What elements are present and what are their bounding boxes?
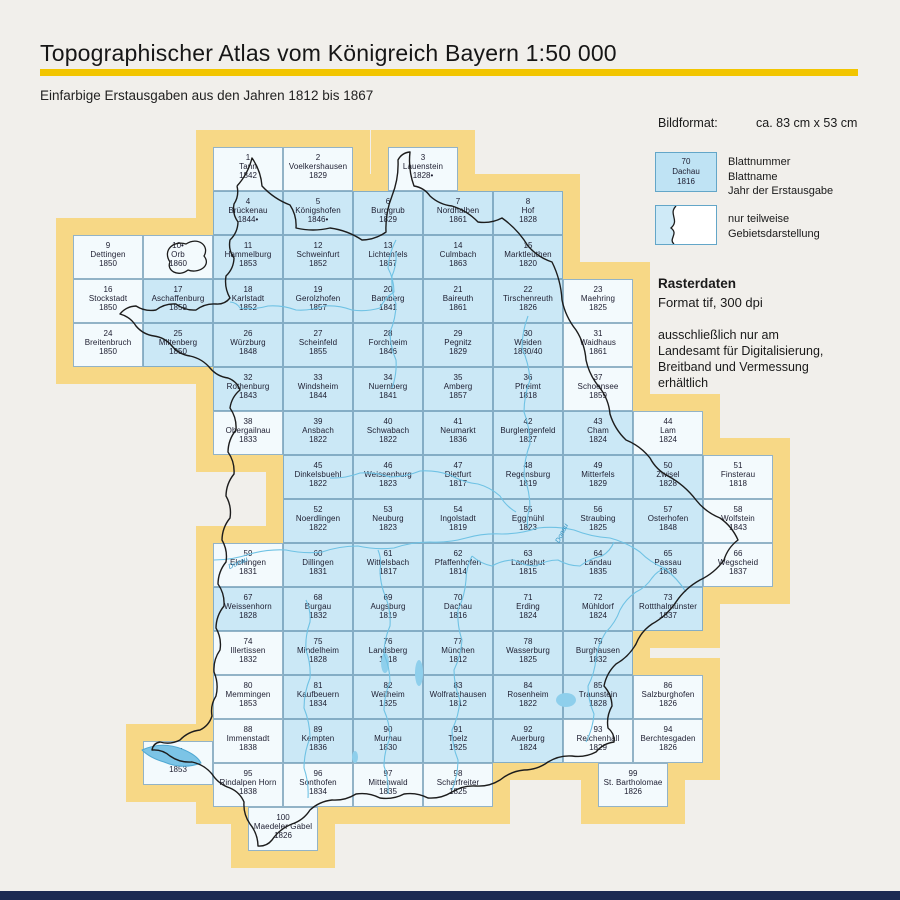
map-sheet-2: 2Voelkershausen1829: [283, 147, 353, 191]
map-sheet-70: 70Dachau1816: [423, 587, 493, 631]
map-sheet-19: 19Gerolzhofen1857: [283, 279, 353, 323]
map-sheet-51: 51Finsterau1818: [703, 455, 773, 499]
map-sheet-1: 1Tann1842: [213, 147, 283, 191]
map-sheet-94: 94Berchtesgaden1826: [633, 719, 703, 763]
map-sheet-77: 77München1812: [423, 631, 493, 675]
map-sheet-82: 82Weilheim1825: [353, 675, 423, 719]
partial-boundary-glyph: [656, 206, 716, 244]
map-sheet-6: 6Burggrub1829: [353, 191, 423, 235]
map-sheet-54: 54Ingolstadt1819: [423, 499, 493, 543]
map-sheet-73: 73Rottthalmünster1837: [633, 587, 703, 631]
map-sheet-25: 25Miltenberg1850: [143, 323, 213, 367]
map-sheet-23: 23Maehring1825: [563, 279, 633, 323]
map-sheet-90: 90Murnau1830: [353, 719, 423, 763]
map-sheet-59: 59Elchingen1831: [213, 543, 283, 587]
map-sheet-33: 33Windsheim1844: [283, 367, 353, 411]
map-sheet-48: 48Regensburg1819: [493, 455, 563, 499]
map-sheet-39: 39Ansbach1822: [283, 411, 353, 455]
map-sheet-87: 87Lindau1853: [143, 741, 213, 785]
map-sheet-37: 37Schoensee1859: [563, 367, 633, 411]
bildformat-value: ca. 83 cm x 53 cm: [756, 116, 857, 130]
map-sheet-89: 89Kempten1836: [283, 719, 353, 763]
map-sheet-71: 71Erding1824: [493, 587, 563, 631]
map-sheet-95: 95Rindalpen Horn1838: [213, 763, 283, 807]
rasterdaten-format: Format tif, 300 dpi: [658, 295, 763, 310]
map-sheet-53: 53Neuburg1823: [353, 499, 423, 543]
map-sheet-74: 74Illertissen1832: [213, 631, 283, 675]
map-sheet-49: 49Mitterfels1829: [563, 455, 633, 499]
rasterdaten-note: ausschließlich nur am Landesamt für Digi…: [658, 327, 826, 391]
map-sheet-31: 31Waidhaus1861: [563, 323, 633, 367]
map-sheet-30: 30Weiden1830/40: [493, 323, 563, 367]
map-sheet-61: 61Wittelsbach1817: [353, 543, 423, 587]
map-sheet-26: 26Würzburg1848: [213, 323, 283, 367]
map-sheet-5: 5Königshofen1846•: [283, 191, 353, 235]
map-sheet-12: 12Schweinfurt1852: [283, 235, 353, 279]
map-sheet-60: 60Dillingen1831: [283, 543, 353, 587]
rasterdaten-title: Rasterdaten: [658, 276, 736, 291]
map-sheet-20: 20Bamberg1841: [353, 279, 423, 323]
map-sheet-52: 52Noerdlingen1822: [283, 499, 353, 543]
map-sheet-8: 8Hof1828: [493, 191, 563, 235]
map-sheet-92: 92Auerburg1824: [493, 719, 563, 763]
map-sheet-63: 63Landshut1815: [493, 543, 563, 587]
map-sheet-99: 99St. Bartholomae1826: [598, 763, 668, 807]
map-sheet-17: 17Aschaffenburg1859: [143, 279, 213, 323]
map-sheet-9: 9Dettingen1850: [73, 235, 143, 279]
atlas-index-page: Topographischer Atlas vom Königreich Bay…: [0, 0, 900, 900]
map-sheet-4: 4Brückenau1844•: [213, 191, 283, 235]
map-sheet-3: 3Lauenstein1828•: [388, 147, 458, 191]
map-sheet-41: 41Neumarkt1836: [423, 411, 493, 455]
map-sheet-38: 38Obergailnau1833: [213, 411, 283, 455]
legend-partial-label: nur teilweise Gebietsdarstellung: [728, 212, 848, 241]
map-sheet-65: 65Passau1838: [633, 543, 703, 587]
map-sheet-13: 13Lichtenfels1867: [353, 235, 423, 279]
map-sheet-22: 22Tirschenreuth1826: [493, 279, 563, 323]
map-sheet-24: 24Breitenbruch1850: [73, 323, 143, 367]
map-sheet-47: 47Dietfurt1817: [423, 455, 493, 499]
map-sheet-27: 27Scheinfeld1855: [283, 323, 353, 367]
legend-sample-year: 1816: [656, 177, 716, 187]
map-sheet-97: 97Mittenwald1835: [353, 763, 423, 807]
map-sheet-62: 62Pfaffenhofen1814: [423, 543, 493, 587]
bildformat-label: Bildformat:: [658, 116, 718, 130]
map-sheet-88: 88Immenstadt1838: [213, 719, 283, 763]
map-sheet-67: 67Weissenhorn1828: [213, 587, 283, 631]
map-sheet-81: 81Kaufbeuern1834: [283, 675, 353, 719]
map-sheet-45: 45Dinkelsbuehl1822: [283, 455, 353, 499]
map-sheet-36: 36Pfreimt1818: [493, 367, 563, 411]
map-sheet-44: 44Lam1824: [633, 411, 703, 455]
map-sheet-68: 68Burgau1832: [283, 587, 353, 631]
map-sheet-75: 75Mindelheim1828: [283, 631, 353, 675]
map-sheet-69: 69Augsburg1819: [353, 587, 423, 631]
map-sheet-85: 85Traunstein1828: [563, 675, 633, 719]
map-sheet-91: 91Toelz1825: [423, 719, 493, 763]
map-sheet-29: 29Pegnitz1829: [423, 323, 493, 367]
map-sheet-21: 21Baireuth1861: [423, 279, 493, 323]
map-sheet-57: 57Osterhofen1848: [633, 499, 703, 543]
map-sheet-50: 50Zwisel1828: [633, 455, 703, 499]
legend-sample-labels: Blattnummer Blattname Jahr der Erstausga…: [728, 155, 833, 199]
map-sheet-18: 18Karlstadt1852: [213, 279, 283, 323]
map-sheet-40: 40Schwabach1822: [353, 411, 423, 455]
map-sheet-79: 79Burghausen1832: [563, 631, 633, 675]
legend-sample-number: 70: [656, 157, 716, 167]
map-sheet-14: 14Culmbach1863: [423, 235, 493, 279]
map-sheet-100: 100Maedeler Gabel1826: [248, 807, 318, 851]
map-sheet-43: 43Cham1824: [563, 411, 633, 455]
map-sheet-28: 28Forchheim1846: [353, 323, 423, 367]
map-sheet-64: 64Landau1835: [563, 543, 633, 587]
map-sheet-34: 34Nuernberg1841: [353, 367, 423, 411]
map-sheet-98: 98Scharfreiter1825: [423, 763, 493, 807]
map-sheet-66: 66Wegscheid1837: [703, 543, 773, 587]
map-sheet-72: 72Mühldorf1824: [563, 587, 633, 631]
legend-sample-name: Dachau: [656, 167, 716, 177]
map-sheet-10: 10•Orb1860: [143, 235, 213, 279]
map-sheet-78: 78Wasserburg1825: [493, 631, 563, 675]
map-sheet-56: 56Straubing1825: [563, 499, 633, 543]
map-sheet-58: 58Wolfstein1843: [703, 499, 773, 543]
map-sheet-46: 46Weissenburg1823: [353, 455, 423, 499]
map-sheet-80: 80Memmingen1853: [213, 675, 283, 719]
map-sheet-grid: 1Tann18422Voelkershausen18293Lauenstein1…: [0, 0, 900, 900]
map-sheet-96: 96Sonthofen1834: [283, 763, 353, 807]
legend-partial-sheet: [655, 205, 717, 245]
map-sheet-35: 35Amberg1857: [423, 367, 493, 411]
map-sheet-11: 11Hammelburg1853: [213, 235, 283, 279]
map-sheet-42: 42Burglengenfeld1827: [493, 411, 563, 455]
map-sheet-76: 76Landsberg1818: [353, 631, 423, 675]
map-sheet-86: 86Salzburghofen1826: [633, 675, 703, 719]
map-sheet-93: 93Reichenhall1829: [563, 719, 633, 763]
map-sheet-15: 15Marktleuthen1820: [493, 235, 563, 279]
map-sheet-32: 32Rothenburg1843: [213, 367, 283, 411]
map-sheet-83: 83Wolfratshausen1812: [423, 675, 493, 719]
bottom-navy-bar: [0, 891, 900, 900]
legend-sample-sheet: 70 Dachau 1816: [655, 152, 717, 192]
map-sheet-84: 84Rosenheim1822: [493, 675, 563, 719]
map-sheet-7: 7Nordhalben1861: [423, 191, 493, 235]
map-sheet-16: 16Stockstadt1850: [73, 279, 143, 323]
map-sheet-55: 55Eggmühl1823: [493, 499, 563, 543]
